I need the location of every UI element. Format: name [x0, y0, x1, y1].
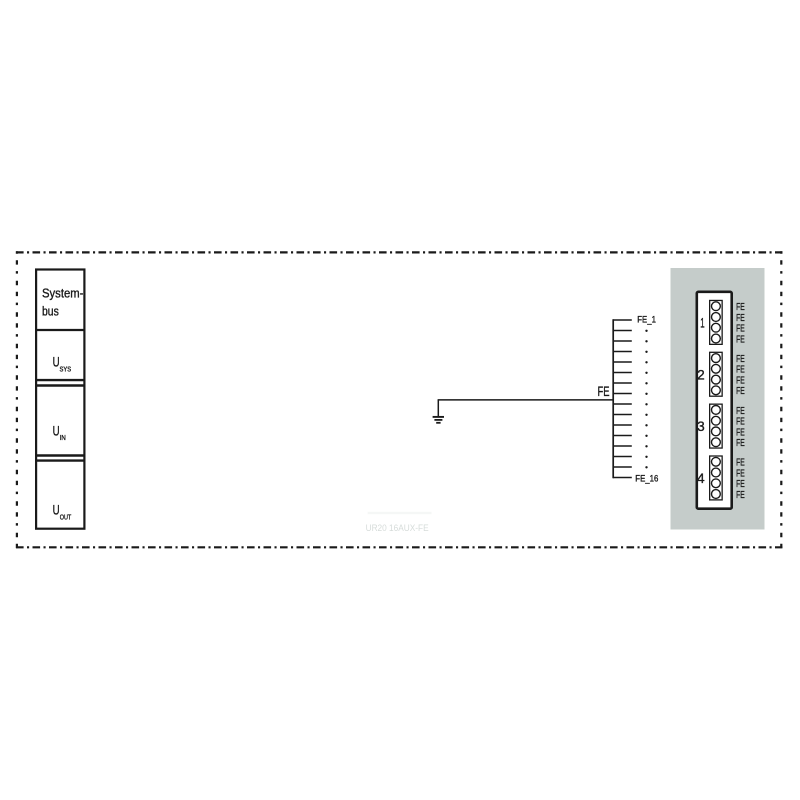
- svg-text:U: U: [53, 423, 60, 439]
- svg-text:IN: IN: [60, 435, 66, 442]
- svg-text:FE_1: FE_1: [637, 314, 656, 324]
- svg-text:FE: FE: [736, 385, 745, 397]
- svg-text:FE: FE: [736, 333, 745, 345]
- svg-text:bus: bus: [42, 304, 59, 318]
- svg-text:FE: FE: [598, 383, 610, 399]
- svg-text:3: 3: [697, 418, 705, 434]
- svg-text:System-: System-: [42, 286, 83, 300]
- svg-text:OUT: OUT: [60, 514, 72, 521]
- svg-text:SYS: SYS: [60, 367, 72, 374]
- svg-text:UR20 16AUX-FE: UR20 16AUX-FE: [366, 523, 429, 534]
- svg-text:1: 1: [700, 314, 705, 330]
- svg-text:FE: FE: [736, 437, 745, 449]
- svg-text:FE: FE: [736, 489, 745, 501]
- svg-text:FE_16: FE_16: [635, 473, 658, 483]
- svg-text:4: 4: [697, 470, 705, 486]
- svg-text:2: 2: [697, 366, 705, 382]
- svg-text:U: U: [53, 503, 60, 519]
